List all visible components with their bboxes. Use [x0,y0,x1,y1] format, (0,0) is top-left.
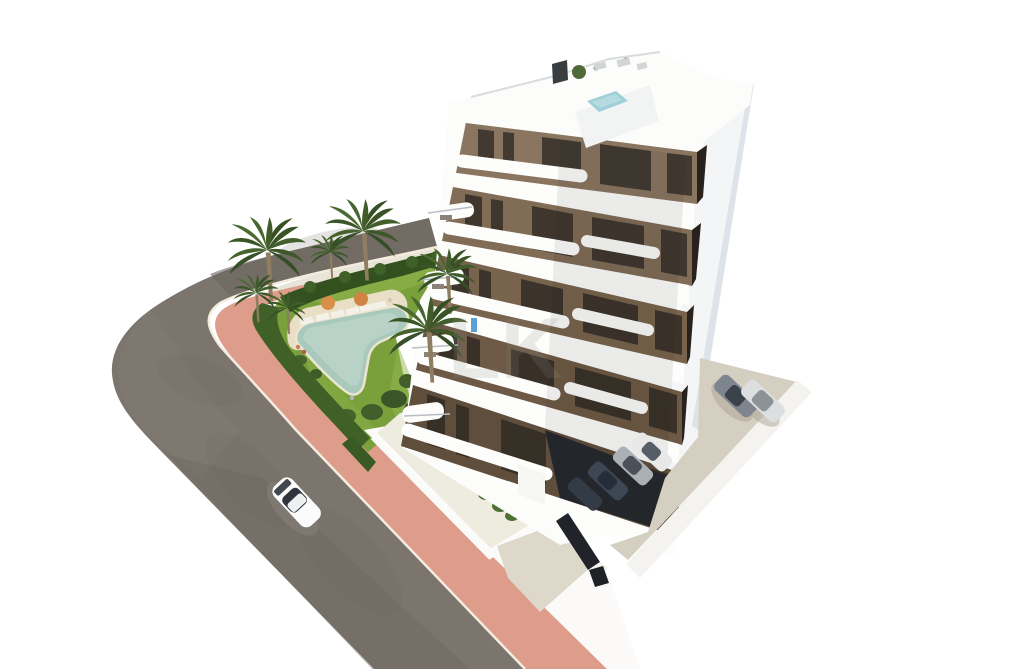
svg-text:LK: LK [448,301,563,397]
